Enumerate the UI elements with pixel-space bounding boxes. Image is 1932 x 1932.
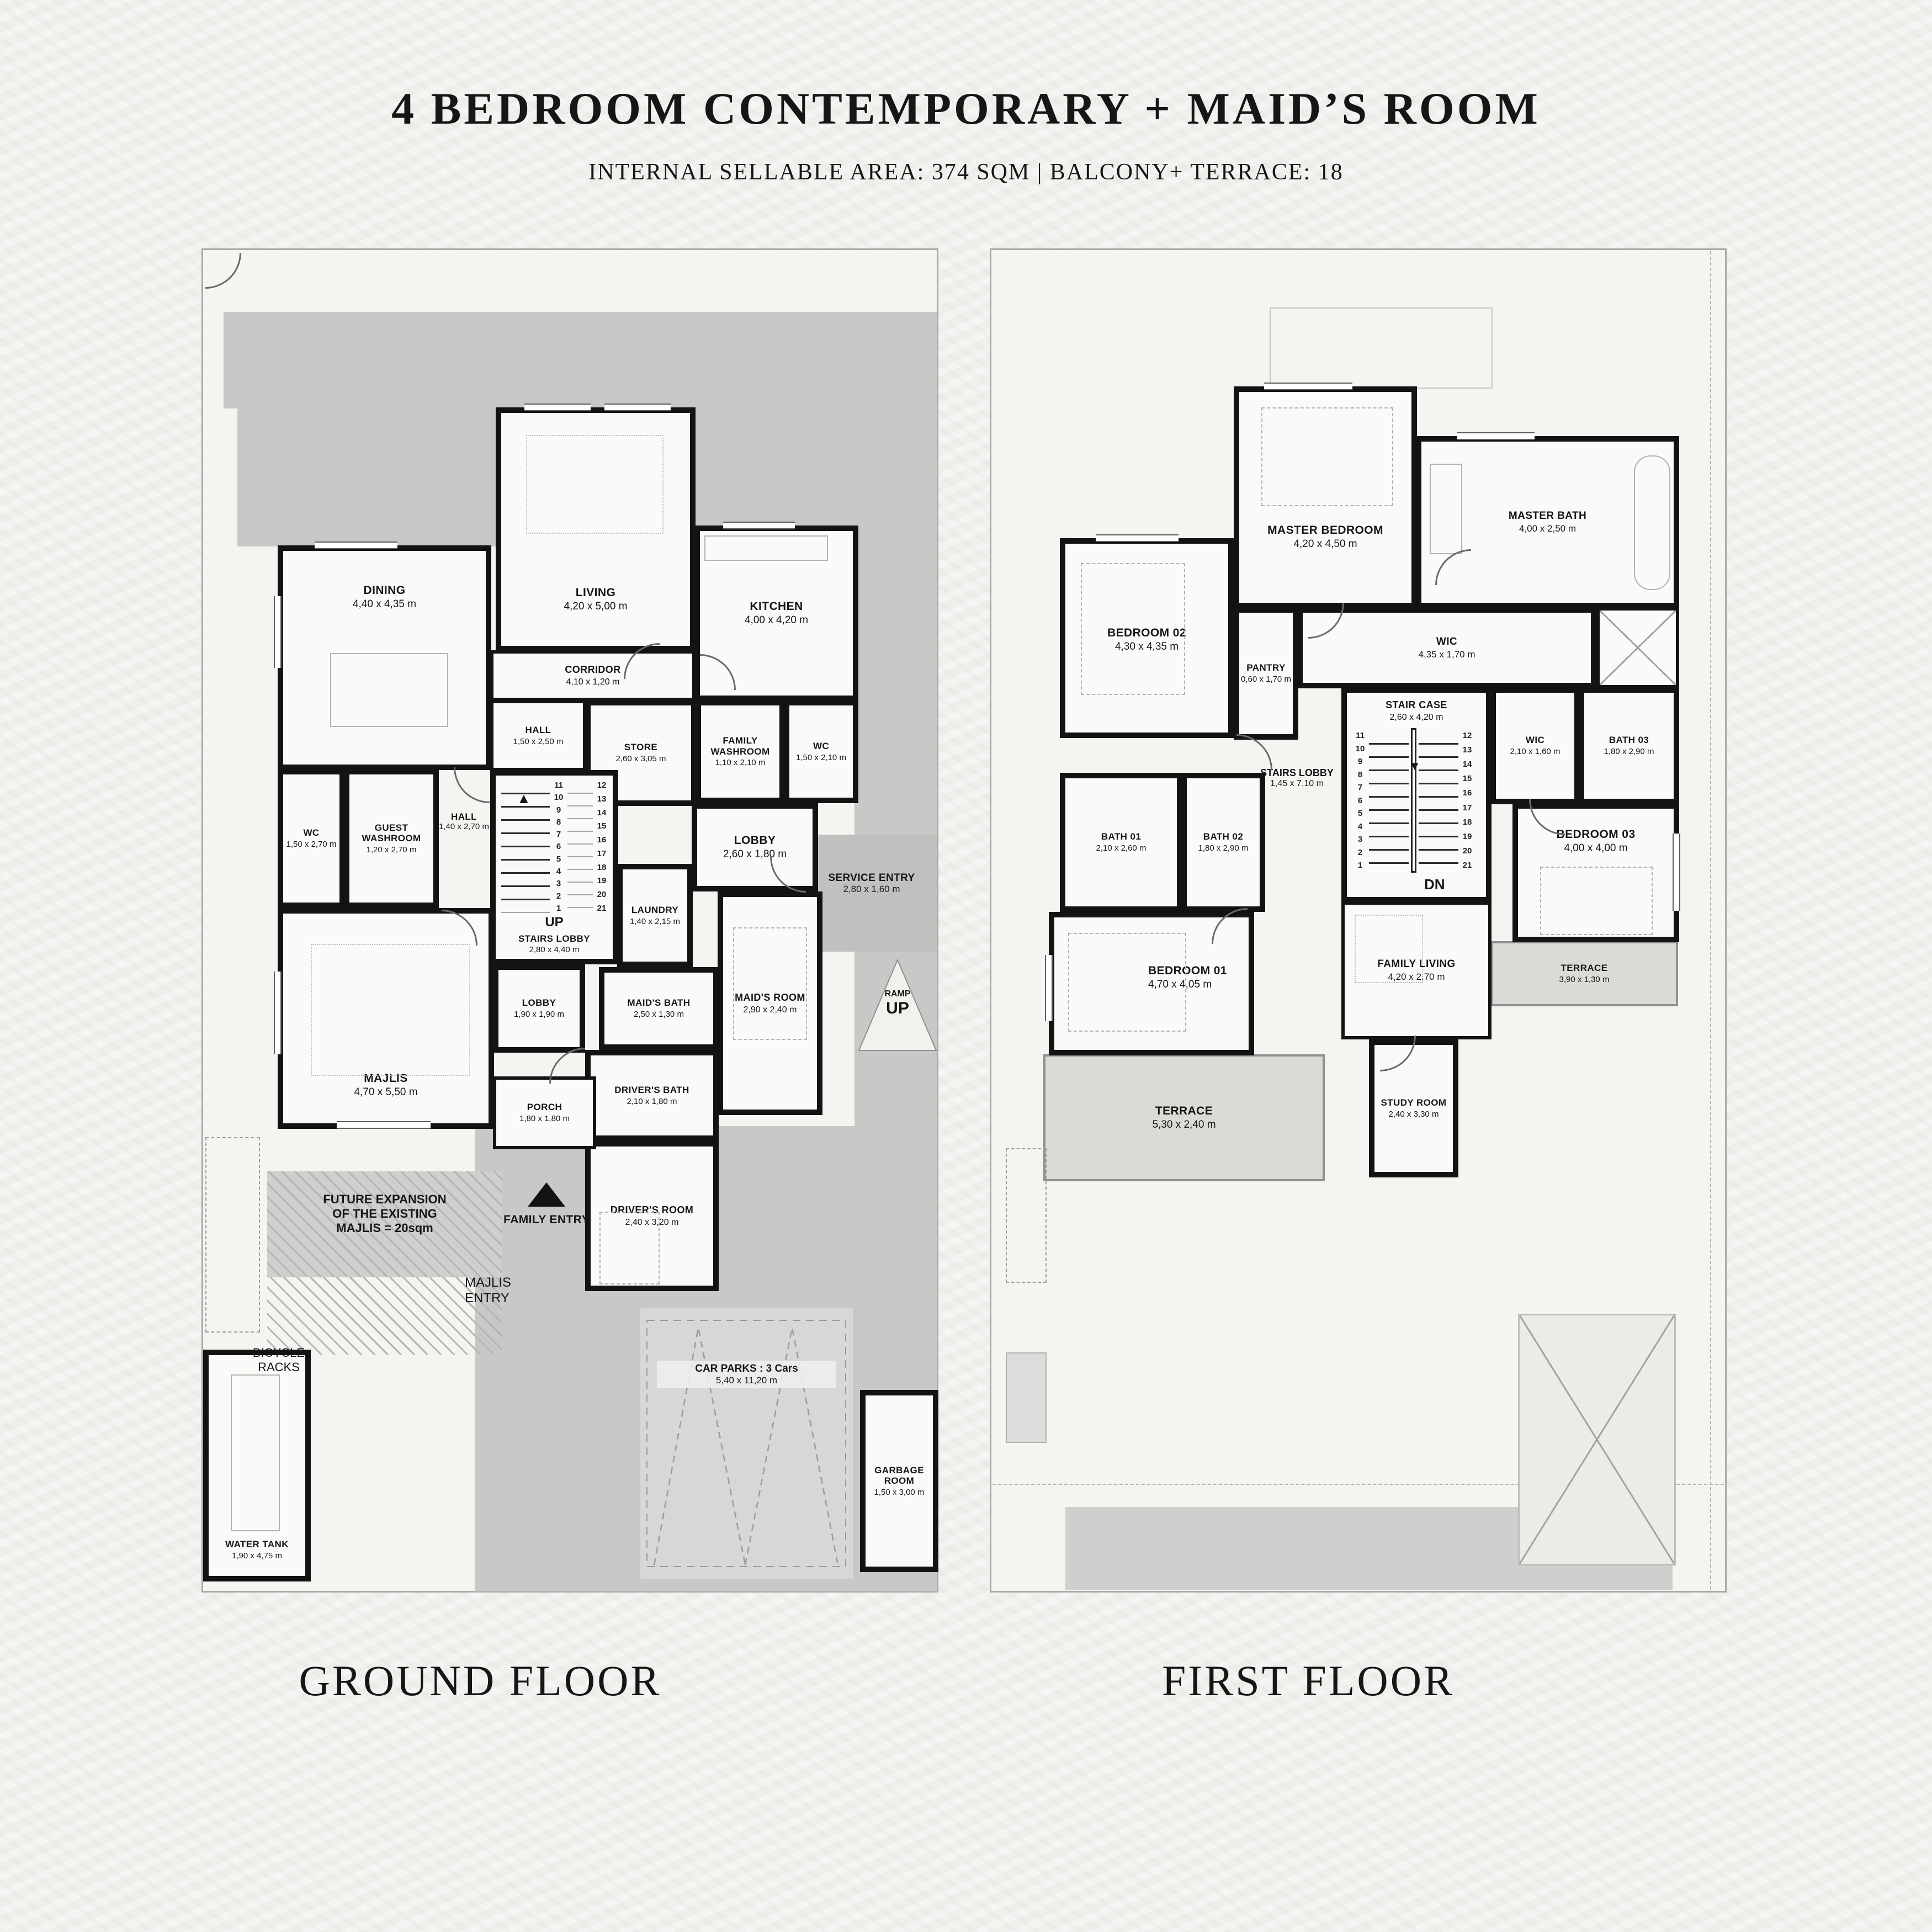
bed-03 bbox=[1540, 867, 1653, 935]
caption-ground-floor: GROUND FLOOR bbox=[287, 1656, 673, 1706]
room-maids-bath: MAID'S BATH 2,50 x 1,30 m bbox=[599, 967, 719, 1050]
room-porch: PORCH 1,80 x 1,80 m bbox=[493, 1076, 596, 1149]
dining-table bbox=[330, 653, 448, 727]
living-rug bbox=[526, 435, 664, 534]
stair-flight-right bbox=[1419, 731, 1458, 869]
double-sink bbox=[1430, 464, 1462, 554]
site-box bbox=[1006, 1148, 1047, 1283]
window bbox=[604, 404, 671, 411]
page-title: 4 BEDROOM CONTEMPORARY + MAID’S ROOM bbox=[0, 83, 1932, 135]
bathtub bbox=[1634, 455, 1670, 590]
room-water-tank: WATER TANK 1,90 x 4,75 m bbox=[203, 1350, 311, 1581]
family-entry-arrow-icon bbox=[528, 1182, 565, 1207]
window bbox=[1096, 534, 1179, 542]
room-dining: DINING 4,40 x 4,35 m bbox=[278, 545, 491, 770]
car-park-wedges-icon bbox=[640, 1314, 853, 1573]
window bbox=[274, 596, 282, 668]
label-bicycle-racks: BICYCLE RACKS bbox=[232, 1346, 326, 1374]
room-maids-room: MAID'S ROOM 2,90 x 2,40 m bbox=[718, 891, 822, 1115]
kitchen-counter bbox=[704, 535, 828, 561]
stair-flight-left bbox=[1369, 731, 1409, 869]
drivers-bed bbox=[599, 1212, 660, 1285]
stair-up-arrow-icon: ▲ bbox=[517, 790, 531, 807]
stairs-up-label: UP bbox=[496, 915, 613, 930]
room-bedroom-02: BEDROOM 02 4,30 x 4,35 m bbox=[1060, 538, 1234, 738]
water-tank-vessel bbox=[231, 1374, 280, 1531]
room-stair-case-ff: STAIR CASE 2,60 x 4,20 m 1110987654321 ▼… bbox=[1341, 687, 1492, 903]
room-living: LIVING 4,20 x 5,00 m bbox=[496, 407, 696, 651]
shower-box bbox=[1596, 607, 1679, 688]
room-corridor: CORRIDOR 4,10 x 1,20 m bbox=[490, 650, 696, 701]
label-family-entry: FAMILY ENTRY bbox=[494, 1213, 599, 1227]
room-wc-guest: WC 1,50 x 2,70 m bbox=[278, 769, 345, 908]
label-car-parks: CAR PARKS : 3 Cars 5,40 x 11,20 m bbox=[657, 1361, 836, 1388]
window bbox=[1045, 955, 1053, 1021]
stair-down-arrow-icon: ▼ bbox=[1409, 759, 1421, 773]
window bbox=[1673, 834, 1680, 911]
maids-bed bbox=[733, 927, 807, 1040]
bicycle-rack-outline bbox=[205, 1137, 260, 1333]
room-hall-upper: HALL 1,50 x 2,50 m bbox=[490, 700, 586, 771]
room-wc-service: WC 1,50 x 2,10 m bbox=[784, 700, 858, 803]
stairs-dn-label: DN bbox=[1424, 876, 1445, 893]
room-lobby-majlis: LOBBY 1,90 x 1,90 m bbox=[493, 964, 585, 1053]
page-subtitle: INTERNAL SELLABLE AREA: 374 SQM | BALCON… bbox=[0, 159, 1932, 185]
window bbox=[1457, 432, 1535, 440]
stair-numbers-right: 12131415161718192021 bbox=[1461, 731, 1474, 869]
bed-01 bbox=[1068, 933, 1186, 1032]
room-stairs-lobby-gf: ▲ 1110987654321 12131415161718192021 UP … bbox=[490, 770, 618, 964]
roof-outline bbox=[1270, 307, 1493, 389]
room-garbage: GARBAGE ROOM 1,50 x 3,00 m bbox=[860, 1390, 938, 1572]
room-drivers-room: DRIVER'S ROOM 2,40 x 3,20 m bbox=[585, 1141, 719, 1291]
stair-rail bbox=[1411, 728, 1416, 873]
room-bath-03: BATH 03 1,80 x 2,90 m bbox=[1579, 687, 1679, 804]
room-wic-master: WIC 4,35 x 1,70 m bbox=[1297, 607, 1596, 688]
label-ramp: RAMP UP bbox=[857, 989, 938, 1018]
terrace-left: TERRACE 5,30 x 2,40 m bbox=[1043, 1054, 1325, 1181]
stair-flight-dashed bbox=[567, 781, 593, 912]
setback-line-v bbox=[1710, 251, 1711, 1590]
room-laundry: LAUNDRY 1,40 x 2,15 m bbox=[617, 864, 693, 967]
paving-upper-left bbox=[237, 407, 497, 546]
bed-02 bbox=[1081, 563, 1185, 695]
window bbox=[524, 404, 591, 411]
room-family-living: FAMILY LIVING 4,20 x 2,70 m bbox=[1341, 901, 1492, 1039]
room-bath-02: BATH 02 1,80 x 2,90 m bbox=[1181, 773, 1265, 912]
site-box-2 bbox=[1006, 1352, 1047, 1443]
terrace-right: TERRACE 3,90 x 1,30 m bbox=[1490, 941, 1678, 1006]
window bbox=[337, 1121, 431, 1129]
label-stairs-lobby-ff: STAIRS LOBBY 1,45 x 7,10 m bbox=[1254, 767, 1340, 789]
caption-first-floor: FIRST FLOOR bbox=[1115, 1656, 1501, 1706]
window bbox=[315, 542, 397, 549]
room-pantry: PANTRY 0,60 x 1,70 m bbox=[1234, 607, 1298, 740]
master-bed bbox=[1261, 407, 1393, 506]
pergola-shade bbox=[1518, 1314, 1676, 1565]
window bbox=[723, 522, 795, 529]
paving-upper-right bbox=[693, 312, 854, 527]
room-drivers-bath: DRIVER'S BATH 2,10 x 1,80 m bbox=[585, 1050, 719, 1141]
room-wic-03: WIC 2,10 x 1,60 m bbox=[1490, 687, 1580, 804]
stair-numbers-left: 1110987654321 bbox=[1354, 731, 1367, 869]
floorplan-sheet: 4 BEDROOM CONTEMPORARY + MAID’S ROOM INT… bbox=[0, 0, 1932, 1932]
window bbox=[274, 972, 282, 1054]
label-hall-lower: HALL 1,40 x 2,70 m bbox=[418, 811, 509, 831]
label-majlis-entry: MAJLIS ENTRY bbox=[465, 1275, 537, 1306]
family-living-rug bbox=[1355, 915, 1423, 983]
room-guest-washroom: GUEST WASHROOM 1,20 x 2,70 m bbox=[344, 769, 439, 908]
room-bedroom-03: BEDROOM 03 4,00 x 4,00 m bbox=[1512, 803, 1679, 942]
room-family-washroom: FAMILY WASHROOM 1,10 x 2,10 m bbox=[696, 700, 785, 803]
label-future-expansion: FUTURE EXPANSION OF THE EXISTING MAJLIS … bbox=[273, 1192, 497, 1235]
stair-numbers-left: 1110987654321 bbox=[552, 781, 565, 912]
majlis-rug bbox=[311, 944, 470, 1076]
room-master-bedroom: MASTER BEDROOM 4,20 x 4,50 m bbox=[1234, 386, 1417, 608]
room-bath-01: BATH 01 2,10 x 2,60 m bbox=[1060, 773, 1182, 912]
stair-numbers-right: 12131415161718192021 bbox=[595, 781, 608, 912]
window bbox=[1264, 383, 1352, 390]
label-service-entry: SERVICE ENTRY 2,80 x 1,60 m bbox=[807, 872, 936, 895]
